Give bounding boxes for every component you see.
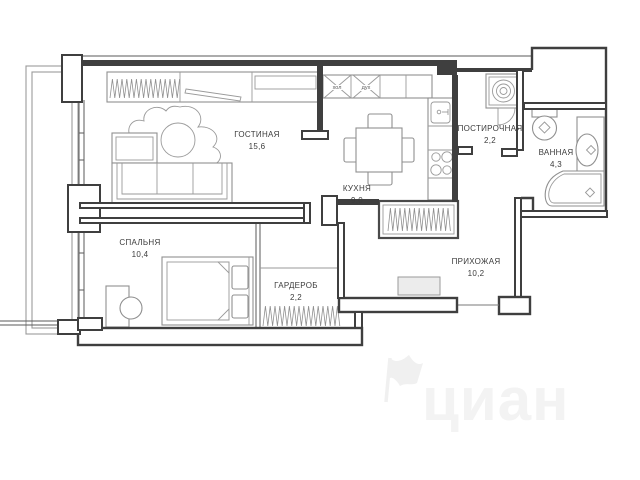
watermark-text: циан [422,366,569,433]
toilet-icon [532,109,557,140]
bathroom-sink-icon [576,117,604,172]
kitchen-counter [428,98,453,200]
hallway-furniture [379,201,458,295]
room-label-living: ГОСТИНАЯ [234,130,280,139]
kitchen-furniture: хол дух [323,75,453,200]
bedroom-furniture [106,257,253,327]
cian-logo-icon [390,355,423,386]
room-area-hallway: 10,2 [468,269,485,278]
room-label-kitchen: КУХНЯ [343,184,371,193]
room-area-laundry: 2,2 [484,136,496,145]
upper-cabinets: хол дух [323,75,432,98]
coffee-table-icon [161,123,195,157]
bench [398,277,440,295]
room-area-kitchen: 9,0 [351,196,363,205]
bathroom-furniture [532,109,604,206]
stool-icon [120,297,142,319]
room-label-bedroom: СПАЛЬНЯ [119,238,160,247]
wardrobe-room-furniture [256,224,340,330]
hall-closet [379,201,458,238]
living-room-furniture [107,72,318,205]
dining-table-icon [344,114,414,185]
floor-plan: циан [0,0,640,480]
room-label-hallway: ПРИХОЖАЯ [452,257,501,266]
cian-watermark: циан [386,355,569,433]
wardrobe-unit [107,72,318,102]
hanging-rail-icon [263,306,340,326]
fridge-label: хол [333,85,342,91]
room-area-bedroom: 10,4 [132,250,149,259]
washing-machine-icon [486,74,521,125]
room-area-living: 15,6 [249,142,266,151]
bathtub-icon [545,171,604,206]
bed-icon [162,257,253,325]
room-area-bathroom: 4,3 [550,160,562,169]
room-label-bathroom: ВАННАЯ [539,148,574,157]
room-label-wardrobe: ГАРДЕРОБ [274,281,318,290]
sofa-icon [112,133,232,205]
room-label-laundry: ПОСТИРОЧНАЯ [458,124,523,133]
oven-label: дух [362,85,371,91]
room-area-wardrobe: 2,2 [290,293,302,302]
laundry-furniture [486,74,521,125]
